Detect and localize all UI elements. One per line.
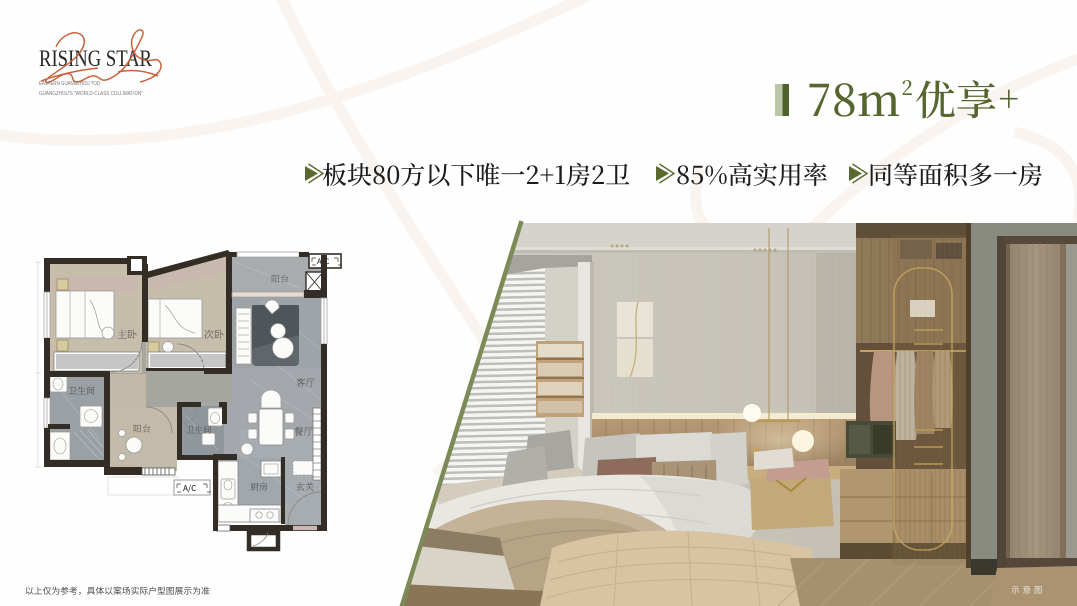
svg-text:GUANGZHOU'S "WORLD-CLASS COLLI: GUANGZHOU'S "WORLD-CLASS COLLIMATION"	[39, 91, 143, 97]
svg-text:EASTERN GUANGZHOU TOD: EASTERN GUANGZHOU TOD	[39, 81, 100, 87]
